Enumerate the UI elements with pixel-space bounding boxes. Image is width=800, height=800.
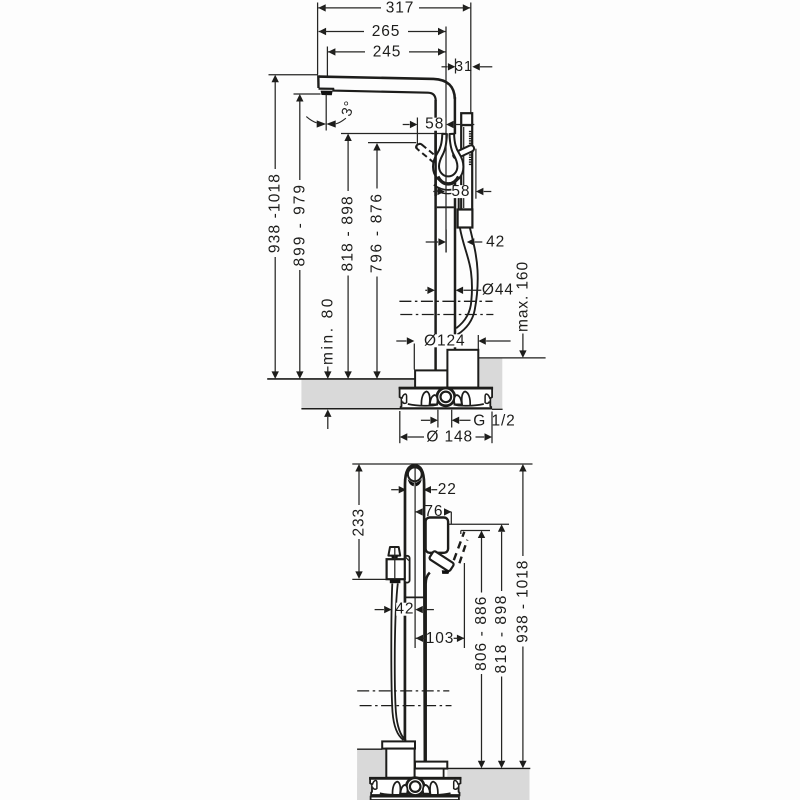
svg-text:245: 245 bbox=[373, 44, 402, 61]
svg-text:796 - 876: 796 - 876 bbox=[369, 192, 386, 273]
svg-text:58: 58 bbox=[425, 116, 444, 133]
svg-text:Ø44: Ø44 bbox=[482, 282, 514, 299]
svg-text:Ø 148: Ø 148 bbox=[426, 429, 473, 446]
svg-text:22: 22 bbox=[438, 481, 457, 498]
svg-text:233: 233 bbox=[351, 508, 368, 537]
svg-text:Ø124: Ø124 bbox=[424, 332, 466, 349]
svg-text:806 - 886: 806 - 886 bbox=[473, 595, 490, 670]
svg-text:42: 42 bbox=[395, 601, 414, 618]
svg-text:58: 58 bbox=[451, 183, 470, 200]
svg-text:938 - 1018: 938 - 1018 bbox=[514, 560, 531, 643]
svg-text:103: 103 bbox=[426, 630, 455, 647]
svg-text:317: 317 bbox=[386, 0, 415, 16]
svg-text:899 - 979: 899 - 979 bbox=[291, 183, 308, 266]
svg-text:max. 160: max. 160 bbox=[515, 261, 532, 332]
svg-text:818 - 898: 818 - 898 bbox=[340, 195, 357, 271]
svg-text:265: 265 bbox=[372, 23, 401, 40]
svg-text:818 - 898: 818 - 898 bbox=[493, 594, 510, 673]
svg-text:min. 80: min. 80 bbox=[319, 296, 336, 365]
svg-text:42: 42 bbox=[486, 233, 505, 250]
svg-text:G 1/2: G 1/2 bbox=[473, 412, 515, 429]
svg-text:31: 31 bbox=[455, 59, 473, 75]
svg-text:938 -1018: 938 -1018 bbox=[267, 173, 284, 253]
